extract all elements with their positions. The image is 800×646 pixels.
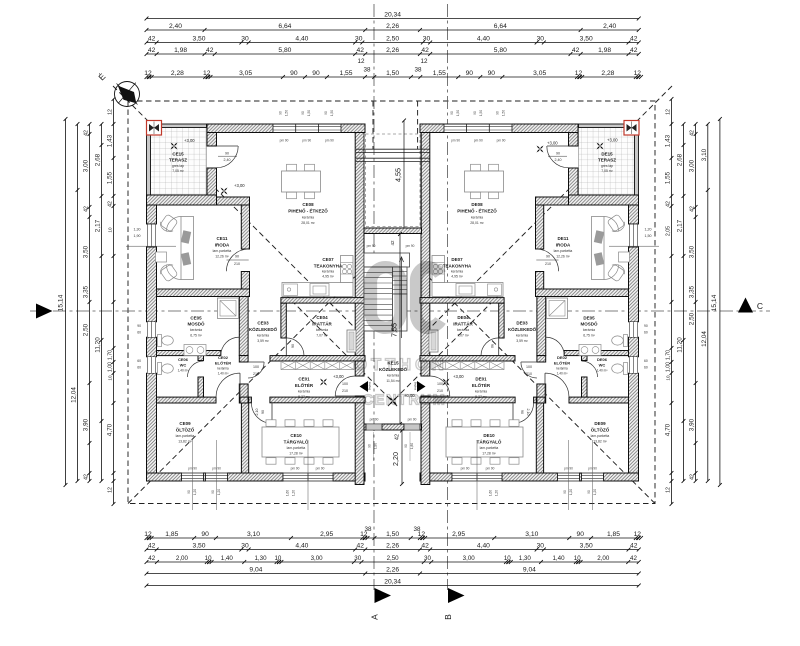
svg-text:TERASZ: TERASZ xyxy=(169,158,187,163)
svg-text:60: 60 xyxy=(644,359,648,363)
svg-text:10: 10 xyxy=(504,555,511,562)
svg-text:38: 38 xyxy=(413,526,421,533)
svg-text:2,26: 2,26 xyxy=(386,23,399,30)
svg-text:kerámia: kerámia xyxy=(516,334,528,338)
svg-text:1,30: 1,30 xyxy=(254,555,267,562)
svg-text:1,50: 1,50 xyxy=(479,110,483,116)
svg-text:pm 90: pm 90 xyxy=(486,467,495,471)
svg-text:TÁRGYALÓ: TÁRGYALÓ xyxy=(477,438,502,445)
svg-text:90: 90 xyxy=(235,255,239,259)
svg-text:1,50: 1,50 xyxy=(330,110,334,116)
svg-text:DE07: DE07 xyxy=(451,257,463,262)
svg-text:90: 90 xyxy=(404,444,408,448)
svg-text:17,28 m²: 17,28 m² xyxy=(482,452,496,456)
svg-text:3,05: 3,05 xyxy=(533,70,546,77)
svg-text:10: 10 xyxy=(108,227,113,233)
svg-text:2,00: 2,00 xyxy=(597,555,610,562)
svg-text:pm 90: pm 90 xyxy=(461,467,470,471)
svg-text:90: 90 xyxy=(279,111,283,115)
svg-text:42: 42 xyxy=(206,47,214,54)
svg-text:3,50: 3,50 xyxy=(192,543,205,550)
svg-text:gres lap: gres lap xyxy=(172,164,184,168)
svg-text:1,20: 1,20 xyxy=(292,490,296,496)
svg-text:3,50: 3,50 xyxy=(83,245,90,258)
svg-text:1,60: 1,60 xyxy=(286,490,290,496)
svg-text:+3,00: +3,00 xyxy=(234,183,245,188)
svg-text:3,59 m²: 3,59 m² xyxy=(257,339,269,343)
svg-text:12: 12 xyxy=(144,70,152,77)
svg-text:12: 12 xyxy=(108,487,114,493)
svg-text:2,50: 2,50 xyxy=(386,36,399,43)
svg-text:CE08: CE08 xyxy=(302,202,314,207)
svg-text:IRODA: IRODA xyxy=(215,243,230,248)
svg-text:17,28 m²: 17,28 m² xyxy=(289,452,303,456)
svg-text:3,35: 3,35 xyxy=(689,285,696,298)
svg-text:CE15: CE15 xyxy=(172,152,184,157)
svg-text:1,20: 1,20 xyxy=(217,489,221,495)
svg-text:11,20: 11,20 xyxy=(677,337,684,353)
svg-text:30: 30 xyxy=(423,36,431,43)
svg-text:CE04: CE04 xyxy=(316,315,328,320)
svg-text:ÖLTÖZŐ: ÖLTÖZŐ xyxy=(591,427,610,433)
svg-text:1,85: 1,85 xyxy=(607,531,620,538)
svg-text:3,00: 3,00 xyxy=(311,555,324,562)
svg-text:100: 100 xyxy=(253,365,259,369)
svg-text:2,10: 2,10 xyxy=(526,409,530,416)
svg-text:30: 30 xyxy=(355,36,363,43)
svg-text:6,64: 6,64 xyxy=(494,23,507,30)
svg-text:1,20: 1,20 xyxy=(193,489,197,495)
svg-text:kerámia: kerámia xyxy=(583,328,595,332)
svg-text:60: 60 xyxy=(137,331,141,335)
svg-text:A: A xyxy=(370,614,380,620)
svg-text:IRATTÁR: IRATTÁR xyxy=(453,321,473,327)
svg-text:3,00: 3,00 xyxy=(689,159,696,172)
svg-text:12: 12 xyxy=(666,109,672,115)
svg-text:90: 90 xyxy=(201,531,209,538)
svg-text:1,00: 1,00 xyxy=(108,362,114,372)
svg-text:DE06: DE06 xyxy=(597,357,608,362)
svg-text:90: 90 xyxy=(488,70,496,77)
svg-text:12: 12 xyxy=(420,58,428,65)
svg-text:12: 12 xyxy=(634,531,642,538)
svg-text:42: 42 xyxy=(630,555,637,562)
svg-text:5,27 m²: 5,27 m² xyxy=(475,395,487,399)
svg-text:90: 90 xyxy=(490,344,494,348)
svg-text:12: 12 xyxy=(108,109,114,115)
svg-text:lam.parketta: lam.parketta xyxy=(287,446,306,450)
svg-text:3,90: 3,90 xyxy=(689,418,696,431)
svg-text:42: 42 xyxy=(84,474,90,480)
svg-text:1,85: 1,85 xyxy=(165,531,178,538)
svg-text:1,40 m²: 1,40 m² xyxy=(557,372,568,376)
svg-text:kerámia: kerámia xyxy=(190,328,202,332)
svg-text:42: 42 xyxy=(84,206,90,212)
svg-text:90: 90 xyxy=(187,490,191,494)
svg-text:+3,00: +3,00 xyxy=(333,374,344,379)
svg-text:42: 42 xyxy=(421,543,429,550)
svg-text:1,55: 1,55 xyxy=(433,70,446,77)
svg-text:2,68: 2,68 xyxy=(95,153,102,166)
svg-text:DE08: DE08 xyxy=(471,202,483,207)
svg-text:1,40: 1,40 xyxy=(221,555,234,562)
svg-text:2,40: 2,40 xyxy=(603,23,616,30)
svg-text:90: 90 xyxy=(644,324,648,328)
svg-text:60: 60 xyxy=(644,331,648,335)
svg-text:pm 90: pm 90 xyxy=(325,139,334,143)
svg-text:12: 12 xyxy=(666,487,672,493)
svg-text:lam.parketta: lam.parketta xyxy=(591,434,610,438)
svg-text:kerámia: kerámia xyxy=(387,374,399,378)
svg-text:15,14: 15,14 xyxy=(711,294,718,311)
svg-text:4,40: 4,40 xyxy=(295,36,308,43)
svg-text:CE11: CE11 xyxy=(216,236,228,241)
svg-text:TÁRGYALÓ: TÁRGYALÓ xyxy=(284,438,309,445)
svg-text:1,43: 1,43 xyxy=(107,134,114,147)
svg-text:DE05: DE05 xyxy=(583,316,595,321)
svg-text:3,50: 3,50 xyxy=(580,36,593,43)
svg-text:2,50: 2,50 xyxy=(689,312,696,325)
svg-text:kerámia: kerámia xyxy=(322,270,334,274)
svg-text:1,20: 1,20 xyxy=(495,490,499,496)
svg-text:12,26 m²: 12,26 m² xyxy=(556,255,570,259)
svg-text:1,40 m²: 1,40 m² xyxy=(178,369,189,373)
svg-text:90: 90 xyxy=(211,490,215,494)
svg-text:2,50: 2,50 xyxy=(387,555,400,562)
svg-text:12: 12 xyxy=(203,70,211,77)
svg-text:2,95: 2,95 xyxy=(452,531,465,538)
svg-text:DE10: DE10 xyxy=(483,433,495,438)
svg-text:90: 90 xyxy=(587,490,591,494)
svg-text:42: 42 xyxy=(421,47,429,54)
svg-text:kerámia: kerámia xyxy=(302,216,314,220)
svg-text:4,40: 4,40 xyxy=(477,543,490,550)
svg-text:90: 90 xyxy=(496,111,500,115)
svg-text:13,82 m²: 13,82 m² xyxy=(178,440,192,444)
svg-text:+3,00: +3,00 xyxy=(453,374,464,379)
svg-text:ÖLTÖZŐ: ÖLTÖZŐ xyxy=(176,427,195,433)
svg-text:1,50: 1,50 xyxy=(285,110,289,116)
svg-text:MOSDÓ: MOSDÓ xyxy=(187,320,205,327)
svg-text:1,50: 1,50 xyxy=(386,531,399,538)
svg-text:6,75 m²: 6,75 m² xyxy=(583,334,595,338)
svg-text:9,04: 9,04 xyxy=(523,567,536,574)
svg-text:9,04: 9,04 xyxy=(249,567,262,574)
svg-text:12: 12 xyxy=(575,70,583,77)
svg-text:13,82 m²: 13,82 m² xyxy=(593,440,607,444)
svg-text:90: 90 xyxy=(261,410,265,414)
svg-text:7,05 m²: 7,05 m² xyxy=(601,169,613,173)
svg-text:CE06: CE06 xyxy=(178,357,189,362)
svg-text:2,50: 2,50 xyxy=(83,323,90,336)
svg-text:60: 60 xyxy=(137,366,141,370)
svg-text:42: 42 xyxy=(630,543,638,550)
svg-text:ELŐTÉR: ELŐTÉR xyxy=(554,361,570,366)
svg-text:pm 90: pm 90 xyxy=(302,139,311,143)
svg-text:DE03: DE03 xyxy=(516,321,528,326)
svg-text:4,55: 4,55 xyxy=(394,168,403,182)
svg-text:12,04: 12,04 xyxy=(701,331,708,347)
svg-text:1,80: 1,80 xyxy=(410,443,414,449)
svg-text:2,17: 2,17 xyxy=(677,219,684,232)
svg-text:1,40 m²: 1,40 m² xyxy=(218,372,229,376)
svg-text:1,55: 1,55 xyxy=(339,70,352,77)
svg-text:90: 90 xyxy=(137,324,141,328)
svg-text:20,34: 20,34 xyxy=(384,12,401,19)
svg-text:3,59 m²: 3,59 m² xyxy=(516,339,528,343)
svg-text:1,55: 1,55 xyxy=(107,171,114,184)
svg-text:DE09: DE09 xyxy=(594,421,606,426)
svg-text:3,00: 3,00 xyxy=(83,159,90,172)
svg-text:CE09: CE09 xyxy=(179,421,191,426)
svg-text:WC: WC xyxy=(180,363,187,368)
svg-text:90: 90 xyxy=(466,70,474,77)
svg-text:IRODA: IRODA xyxy=(556,243,571,248)
svg-text:10: 10 xyxy=(108,375,113,381)
svg-text:100: 100 xyxy=(437,382,443,386)
svg-text:15,14: 15,14 xyxy=(58,294,65,311)
svg-text:30: 30 xyxy=(424,555,431,562)
svg-text:60: 60 xyxy=(137,359,141,363)
svg-text:2,26: 2,26 xyxy=(386,567,399,574)
svg-text:100: 100 xyxy=(342,382,348,386)
svg-text:42: 42 xyxy=(356,543,364,550)
svg-text:28,01 m²: 28,01 m² xyxy=(470,221,484,225)
svg-text:4,95 m²: 4,95 m² xyxy=(322,275,334,279)
svg-text:90: 90 xyxy=(473,111,477,115)
svg-text:42: 42 xyxy=(666,201,672,207)
svg-text:5,27 m²: 5,27 m² xyxy=(298,395,310,399)
svg-text:90: 90 xyxy=(312,70,320,77)
svg-text:ELŐTÉR: ELŐTÉR xyxy=(215,361,231,366)
svg-text:5,80: 5,80 xyxy=(278,47,291,54)
svg-text:12: 12 xyxy=(144,531,152,538)
svg-text:Bejárat: Bejárat xyxy=(414,382,418,390)
svg-text:pm 90: pm 90 xyxy=(370,418,379,422)
svg-text:90: 90 xyxy=(324,111,328,115)
svg-text:1,40 m²: 1,40 m² xyxy=(597,369,608,373)
svg-text:PIHENŐ - ÉTKEZŐ: PIHENŐ - ÉTKEZŐ xyxy=(288,207,328,214)
svg-text:1,80: 1,80 xyxy=(374,443,378,449)
svg-text:pm 90: pm 90 xyxy=(408,418,417,422)
svg-text:ELŐTÉR: ELŐTÉR xyxy=(472,381,491,388)
svg-text:2,68: 2,68 xyxy=(677,153,684,166)
svg-text:90: 90 xyxy=(368,444,372,448)
svg-text:pm 90: pm 90 xyxy=(291,467,300,471)
svg-text:4,70: 4,70 xyxy=(107,423,114,436)
svg-text:42: 42 xyxy=(84,130,90,136)
svg-text:lam.parketta: lam.parketta xyxy=(480,446,499,450)
svg-text:3,00: 3,00 xyxy=(463,555,476,562)
svg-text:kerámia: kerámia xyxy=(556,367,568,371)
svg-text:gres lap: gres lap xyxy=(601,164,613,168)
svg-text:+3,00: +3,00 xyxy=(184,138,195,143)
svg-text:kerámia: kerámia xyxy=(298,390,310,394)
svg-text:1,98: 1,98 xyxy=(598,47,611,54)
svg-text:210: 210 xyxy=(342,389,348,393)
svg-text:3,50: 3,50 xyxy=(580,543,593,550)
svg-text:2,28: 2,28 xyxy=(171,70,184,77)
svg-text:42: 42 xyxy=(690,474,696,480)
svg-text:pm 90: pm 90 xyxy=(316,467,325,471)
svg-text:3,35: 3,35 xyxy=(83,285,90,298)
svg-text:2,17: 2,17 xyxy=(95,219,102,232)
svg-text:7,07 m²: 7,07 m² xyxy=(457,334,469,338)
svg-text:kerámia: kerámia xyxy=(475,390,487,394)
svg-text:PIHENŐ - ÉTKEZŐ: PIHENŐ - ÉTKEZŐ xyxy=(457,207,497,214)
svg-text:2,26: 2,26 xyxy=(386,543,399,550)
svg-text:lam.parketta: lam.parketta xyxy=(554,249,573,253)
svg-text:90: 90 xyxy=(546,255,550,259)
svg-text:2,28: 2,28 xyxy=(601,70,614,77)
svg-text:42: 42 xyxy=(148,555,155,562)
svg-text:7,07 m²: 7,07 m² xyxy=(316,334,328,338)
svg-text:1,98: 1,98 xyxy=(174,47,187,54)
svg-text:90: 90 xyxy=(563,490,567,494)
svg-text:1,50: 1,50 xyxy=(456,110,460,116)
svg-text:CE02: CE02 xyxy=(218,355,229,360)
svg-text:2,40: 2,40 xyxy=(224,158,231,162)
svg-text:1,55: 1,55 xyxy=(665,171,672,184)
svg-text:Bejárat: Bejárat xyxy=(368,382,372,390)
svg-text:kerámia: kerámia xyxy=(316,328,328,332)
svg-text:kerámia: kerámia xyxy=(451,270,463,274)
svg-text:12,04: 12,04 xyxy=(71,387,78,403)
svg-text:pm 90: pm 90 xyxy=(406,244,415,248)
svg-text:30: 30 xyxy=(537,543,545,550)
svg-text:TEAKONYHA: TEAKONYHA xyxy=(314,264,343,269)
svg-text:DE02: DE02 xyxy=(557,355,568,360)
svg-text:1,50: 1,50 xyxy=(645,234,652,238)
svg-text:42: 42 xyxy=(148,543,156,550)
svg-text:30: 30 xyxy=(354,555,361,562)
svg-text:4,70: 4,70 xyxy=(665,423,672,436)
svg-text:B: B xyxy=(443,614,453,620)
svg-text:2,05: 2,05 xyxy=(666,226,672,236)
svg-text:IRATTÁR: IRATTÁR xyxy=(312,321,332,327)
svg-text:ELŐTÉR: ELŐTÉR xyxy=(295,381,314,388)
svg-text:2,40: 2,40 xyxy=(555,158,562,162)
svg-text:1,40: 1,40 xyxy=(552,555,565,562)
svg-text:10: 10 xyxy=(574,555,581,562)
svg-text:CE03: CE03 xyxy=(257,321,269,326)
svg-text:42: 42 xyxy=(390,240,395,246)
svg-text:90: 90 xyxy=(225,152,229,156)
svg-text:lam.parketta: lam.parketta xyxy=(176,434,195,438)
svg-text:10: 10 xyxy=(205,555,212,562)
svg-text:38: 38 xyxy=(414,67,422,74)
svg-text:100: 100 xyxy=(526,365,532,369)
svg-text:TEAKONYHA: TEAKONYHA xyxy=(443,264,472,269)
svg-text:1,43: 1,43 xyxy=(665,134,672,147)
svg-text:4,40: 4,40 xyxy=(295,543,308,550)
svg-text:10: 10 xyxy=(666,375,671,381)
svg-text:4,95 m²: 4,95 m² xyxy=(451,275,463,279)
svg-text:KÖZLEKEDŐ: KÖZLEKEDŐ xyxy=(508,326,537,332)
svg-text:1,60: 1,60 xyxy=(489,490,493,496)
svg-text:lam.parketta: lam.parketta xyxy=(213,249,232,253)
svg-text:42: 42 xyxy=(572,47,580,54)
svg-text:CE07: CE07 xyxy=(322,257,334,262)
svg-text:42: 42 xyxy=(690,130,696,136)
svg-text:MOSDÓ: MOSDÓ xyxy=(580,320,598,327)
svg-text:CENTRUM: CENTRUM xyxy=(363,393,447,409)
svg-text:30: 30 xyxy=(241,543,249,550)
svg-text:kerámia: kerámia xyxy=(217,367,229,371)
svg-text:1,30: 1,30 xyxy=(519,555,532,562)
svg-text:3,50: 3,50 xyxy=(192,36,205,43)
svg-text:3,50: 3,50 xyxy=(689,245,696,258)
svg-text:11,54 m²: 11,54 m² xyxy=(386,379,400,383)
svg-text:2,20: 2,20 xyxy=(391,452,400,466)
svg-text:20,34: 20,34 xyxy=(384,579,401,586)
svg-text:2,40: 2,40 xyxy=(169,23,182,30)
svg-text:210: 210 xyxy=(234,262,240,266)
svg-text:30: 30 xyxy=(241,36,249,43)
svg-text:10: 10 xyxy=(274,555,281,562)
svg-text:1,20: 1,20 xyxy=(569,489,573,495)
svg-text:38: 38 xyxy=(363,67,371,74)
svg-text:38: 38 xyxy=(364,526,372,533)
svg-text:pm 90: pm 90 xyxy=(497,139,506,143)
svg-text:DE15: DE15 xyxy=(601,152,613,157)
svg-text:3,05: 3,05 xyxy=(239,70,252,77)
svg-text:42: 42 xyxy=(148,47,156,54)
svg-text:1,20: 1,20 xyxy=(645,228,652,232)
svg-text:90: 90 xyxy=(556,152,560,156)
svg-text:12: 12 xyxy=(357,58,365,65)
svg-text:11,20: 11,20 xyxy=(95,337,102,353)
svg-text:210: 210 xyxy=(253,372,259,376)
svg-text:+3,00: +3,00 xyxy=(547,141,558,146)
svg-text:DE04: DE04 xyxy=(457,315,469,320)
svg-text:1,30: 1,30 xyxy=(134,228,141,232)
svg-text:1,20: 1,20 xyxy=(593,489,597,495)
svg-text:12: 12 xyxy=(634,70,642,77)
svg-text:4,40: 4,40 xyxy=(477,36,490,43)
svg-text:42: 42 xyxy=(108,201,114,207)
svg-text:pm 90: pm 90 xyxy=(451,139,460,143)
svg-text:DE11: DE11 xyxy=(557,236,569,241)
svg-text:7,05 m²: 7,05 m² xyxy=(172,169,184,173)
svg-text:DE01: DE01 xyxy=(475,377,487,382)
svg-text:1,50: 1,50 xyxy=(386,70,399,77)
svg-text:90: 90 xyxy=(450,111,454,115)
svg-text:1,50: 1,50 xyxy=(307,110,311,116)
svg-text:3,10: 3,10 xyxy=(701,148,708,161)
svg-text:2,95: 2,95 xyxy=(320,531,333,538)
svg-text:210: 210 xyxy=(545,262,551,266)
svg-text:pm 90: pm 90 xyxy=(367,244,376,248)
svg-text:kerámia: kerámia xyxy=(471,216,483,220)
svg-text:pm 90: pm 90 xyxy=(474,139,483,143)
svg-text:60: 60 xyxy=(644,366,648,370)
svg-text:90: 90 xyxy=(520,410,524,414)
svg-text:C: C xyxy=(757,301,763,311)
svg-text:30: 30 xyxy=(537,36,545,43)
svg-text:90: 90 xyxy=(290,70,298,77)
svg-text:42: 42 xyxy=(630,36,638,43)
svg-text:1,70: 1,70 xyxy=(108,350,114,360)
svg-text:3,90: 3,90 xyxy=(83,418,90,431)
svg-text:1,90: 1,90 xyxy=(134,234,141,238)
svg-text:42: 42 xyxy=(630,47,638,54)
svg-text:3,10: 3,10 xyxy=(525,531,538,538)
svg-text:90: 90 xyxy=(291,344,295,348)
svg-text:2,10: 2,10 xyxy=(255,409,259,416)
svg-text:1,70: 1,70 xyxy=(666,350,672,360)
svg-text:42: 42 xyxy=(148,36,156,43)
